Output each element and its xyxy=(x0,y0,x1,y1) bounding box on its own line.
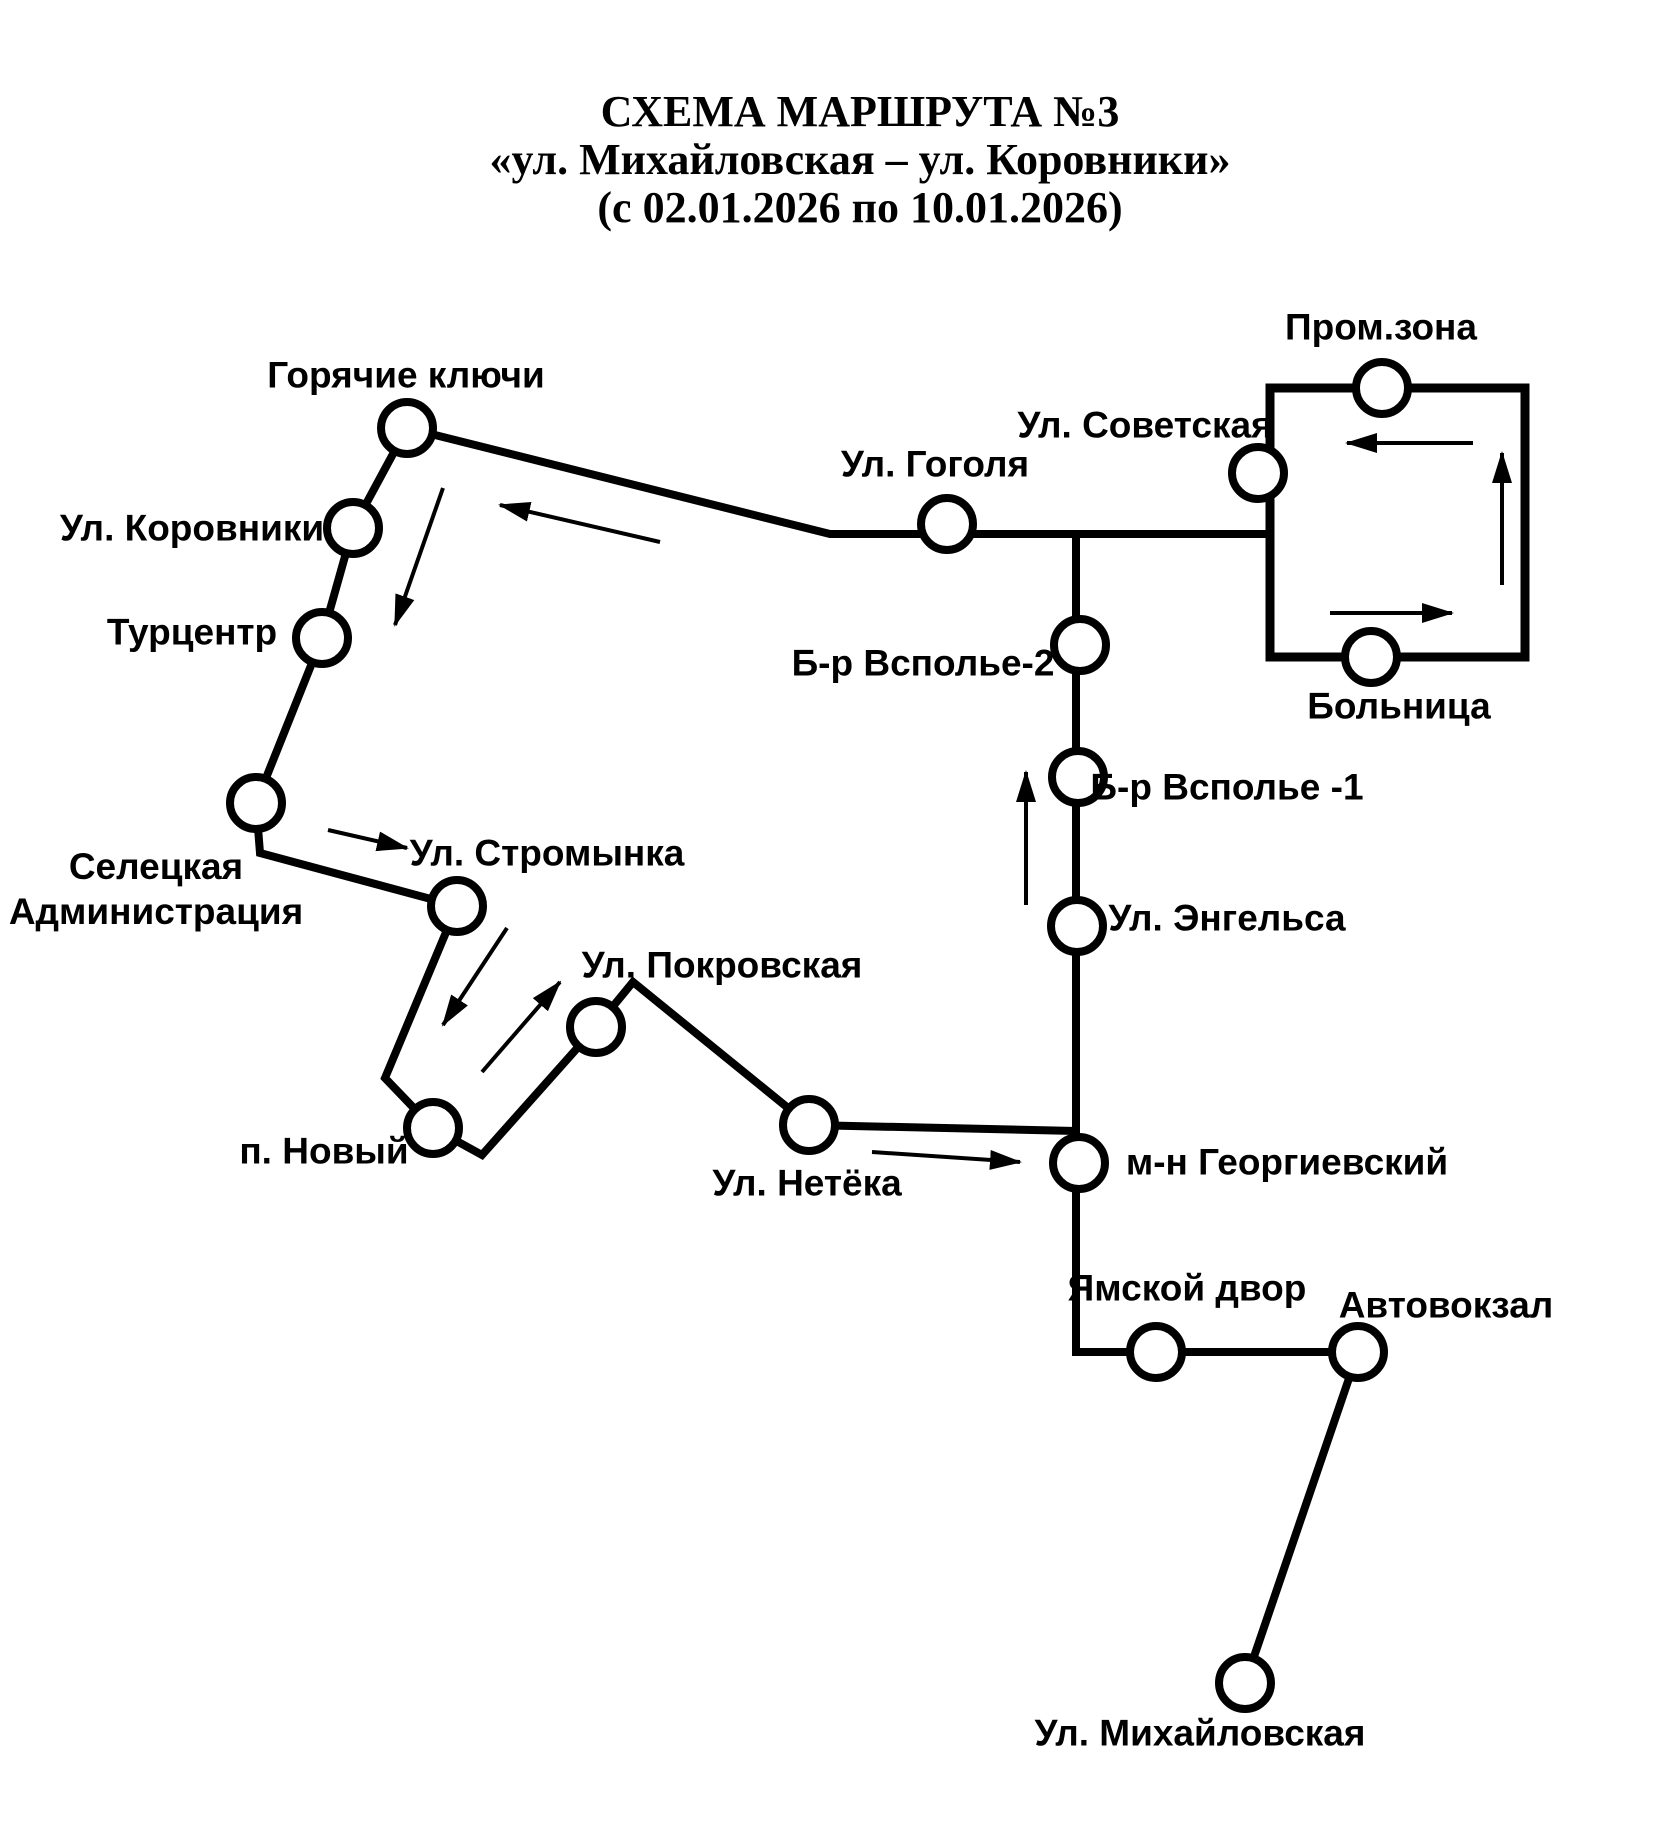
stop-label-line: Горячие ключи xyxy=(267,353,544,398)
loop-rectangle xyxy=(1270,388,1525,657)
stop-label-line: Ул. Энгельса xyxy=(1108,896,1345,941)
arrow-to-pokrovskaya xyxy=(482,982,560,1072)
stop-label-line: Автовокзал xyxy=(1339,1283,1554,1328)
stop-label-gogolya: Ул. Гоголя xyxy=(841,442,1029,487)
stop-label-line: Ул. Гоголя xyxy=(841,442,1029,487)
stop-label-georgievskiy: м-н Георгиевский xyxy=(1126,1140,1448,1185)
stop-label-mikhaylovskaya: Ул. Михайловская xyxy=(1035,1711,1366,1756)
stop-label-turtsentr: Турцентр xyxy=(107,610,277,655)
stop-circle-sovetskaya xyxy=(1232,447,1284,499)
stop-label-line: п. Новый xyxy=(239,1129,408,1174)
stop-label-line: Больница xyxy=(1307,684,1490,729)
stop-label-sovetskaya: Ул. Советская xyxy=(1017,403,1272,448)
stop-label-line: Турцентр xyxy=(107,610,277,655)
stop-circle-korovniki xyxy=(327,502,379,554)
stop-label-yamskoy-dvor: Ямской двор xyxy=(1068,1266,1307,1311)
stop-label-vspole-2: Б-р Всполье-2 xyxy=(792,641,1055,686)
stop-circle-mikhaylovskaya xyxy=(1219,1657,1271,1709)
stop-label-line: Ул. Советская xyxy=(1017,403,1272,448)
stop-label-line: Пром.зона xyxy=(1285,305,1477,350)
stop-label-novyy: п. Новый xyxy=(239,1129,408,1174)
stop-circle-promzona xyxy=(1356,362,1408,414)
stop-circle-goryachie-klyuchi xyxy=(381,402,433,454)
stop-label-line: Ямской двор xyxy=(1068,1266,1307,1311)
stop-label-line: Ул. Стромынка xyxy=(410,831,685,876)
arrow-klyuchi-down xyxy=(395,488,443,625)
stop-label-goryachie-klyuchi: Горячие ключи xyxy=(267,353,544,398)
stop-label-line: м-н Георгиевский xyxy=(1126,1140,1448,1185)
stop-circle-gogolya xyxy=(921,498,973,550)
stop-label-avtovokzal: Автовокзал xyxy=(1339,1283,1554,1328)
stop-circle-pokrovskaya xyxy=(570,1001,622,1053)
stop-label-line: Ул. Коровники xyxy=(60,506,324,551)
stop-circle-stromynka xyxy=(431,880,483,932)
stop-circle-novyy xyxy=(407,1102,459,1154)
stop-label-seletskaya-administratsiya: СелецкаяАдминистрация xyxy=(9,844,303,934)
stop-label-promzona: Пром.зона xyxy=(1285,305,1477,350)
stop-circle-yamskoy-dvor xyxy=(1130,1326,1182,1378)
stop-label-korovniki: Ул. Коровники xyxy=(60,506,324,551)
arrow-to-stromynka xyxy=(328,830,407,848)
stop-label-line: Администрация xyxy=(9,889,303,934)
route-scheme-page: СХЕМА МАРШРУТА №3 «ул. Михайловская – ул… xyxy=(0,0,1654,1838)
stop-circle-georgievskiy xyxy=(1053,1137,1105,1189)
stop-label-vspole-1: Б-р Всполье -1 xyxy=(1090,765,1363,810)
stop-label-bolnitsa: Больница xyxy=(1307,684,1490,729)
stop-label-line: Ул. Покровская xyxy=(582,943,863,988)
stop-circle-seletskaya-administratsiya xyxy=(230,777,282,829)
stop-label-line: Б-р Всполье-2 xyxy=(792,641,1055,686)
stop-label-pokrovskaya: Ул. Покровская xyxy=(582,943,863,988)
stop-label-line: Ул. Нетёка xyxy=(712,1161,901,1206)
stop-label-engelsa: Ул. Энгельса xyxy=(1108,896,1345,941)
stop-circle-bolnitsa xyxy=(1345,631,1397,683)
stop-circle-avtovokzal xyxy=(1332,1326,1384,1378)
arrow-to-klyuchi xyxy=(500,505,660,542)
stop-circle-vspole-2 xyxy=(1054,619,1106,671)
stop-circle-netyoka xyxy=(783,1099,835,1151)
route-lines xyxy=(256,388,1525,1683)
stop-label-line: Ул. Михайловская xyxy=(1035,1711,1366,1756)
stop-label-line: Селецкая xyxy=(9,844,303,889)
stop-label-stromynka: Ул. Стромынка xyxy=(410,831,685,876)
stop-label-netyoka: Ул. Нетёка xyxy=(712,1161,901,1206)
stop-label-line: Б-р Всполье -1 xyxy=(1090,765,1363,810)
stop-circle-engelsa xyxy=(1051,900,1103,952)
arrow-stromynka-down xyxy=(443,928,507,1025)
stop-circle-turtsentr xyxy=(296,612,348,664)
